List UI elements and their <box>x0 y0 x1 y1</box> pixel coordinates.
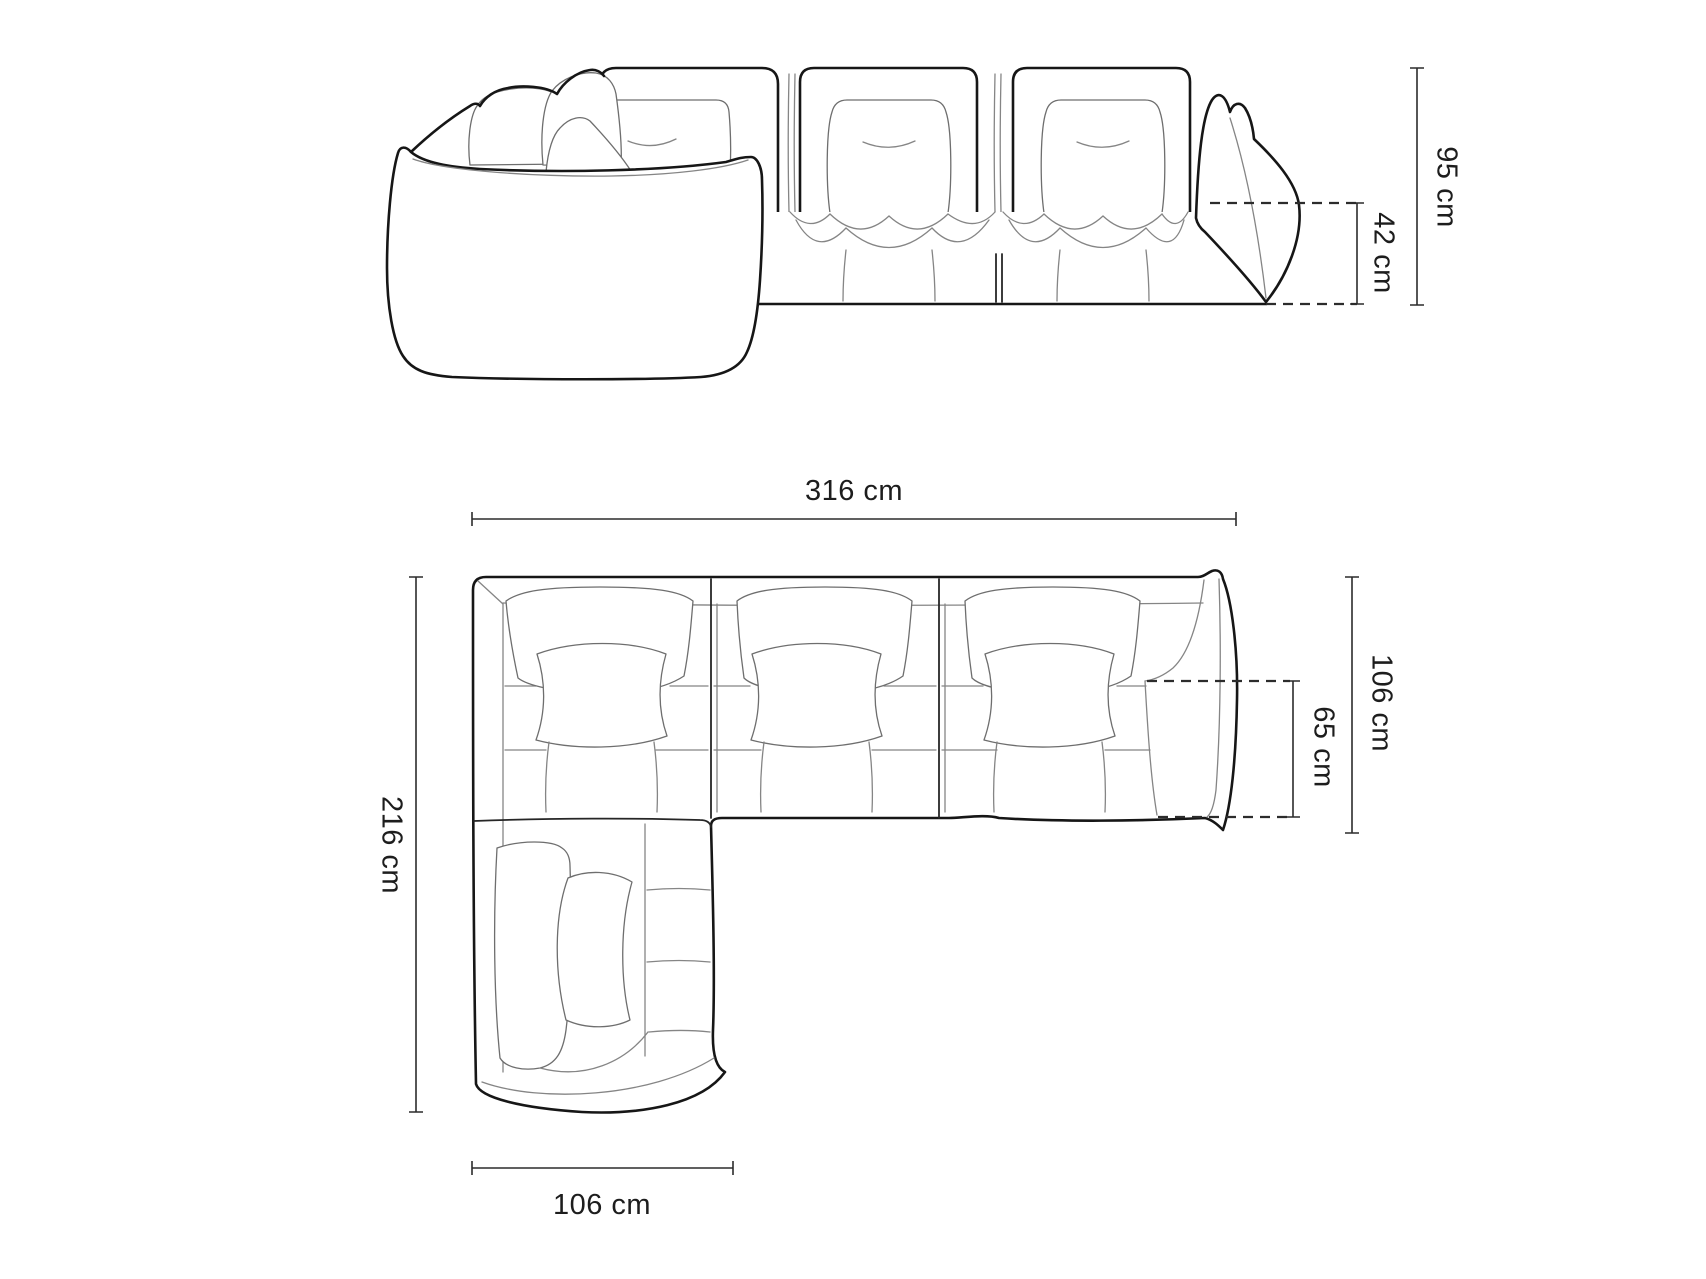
panel-seam-lines <box>788 74 795 212</box>
panel-seam-lines <box>994 74 1001 212</box>
dimension-chaise-width: 106 cm <box>472 1161 733 1221</box>
dim-label-module-depth: 106 cm <box>1365 654 1397 752</box>
dimension-line <box>1286 681 1300 817</box>
seam-line <box>788 74 789 212</box>
dimension-seat-height: 42 cm <box>1350 203 1399 304</box>
corner-module-outline <box>387 148 762 380</box>
dim-label-total-width: 316 cm <box>805 475 903 507</box>
dim-label-seat-height: 42 cm <box>1367 212 1399 293</box>
dim-label-total-height: 95 cm <box>1430 146 1462 227</box>
dimension-total-depth: 216 cm <box>375 577 423 1112</box>
dimension-line <box>472 1161 733 1175</box>
dimension-module-depth: 106 cm <box>1345 577 1397 833</box>
sofa-dimension-diagram: 42 cm 95 cm <box>0 0 1706 1279</box>
chaise-pillow-top-view <box>557 872 632 1026</box>
dimension-line <box>472 512 1236 526</box>
dimension-total-height: 95 cm <box>1410 68 1462 305</box>
dim-label-seat-depth: 65 cm <box>1307 706 1339 787</box>
dim-label-total-depth: 216 cm <box>375 796 407 894</box>
seam-line <box>994 74 995 212</box>
dimension-line <box>1345 577 1359 833</box>
corner-module <box>387 148 762 380</box>
dimension-line <box>409 577 423 1112</box>
front-elevation-view: 42 cm 95 cm <box>387 68 1462 379</box>
dim-label-chaise-width: 106 cm <box>553 1189 651 1221</box>
pillow-top-view <box>751 644 882 748</box>
module-back-cushion <box>827 100 951 217</box>
pillow-top-view <box>536 644 667 748</box>
dimension-seat-depth: 65 cm <box>1286 681 1339 817</box>
dimension-line <box>1350 203 1364 304</box>
corner-pillows <box>411 70 631 172</box>
dimension-total-width: 316 cm <box>472 475 1236 526</box>
pillow-top-view <box>984 644 1115 748</box>
module-back-cushion <box>1041 100 1165 217</box>
dimension-line <box>1410 68 1424 305</box>
diagram-canvas: 42 cm 95 cm <box>0 0 1706 1279</box>
seam-line <box>794 74 795 212</box>
top-plan-view: 316 cm 216 cm 106 cm 65 cm 106 cm <box>375 475 1397 1221</box>
seam-line <box>1000 74 1001 212</box>
